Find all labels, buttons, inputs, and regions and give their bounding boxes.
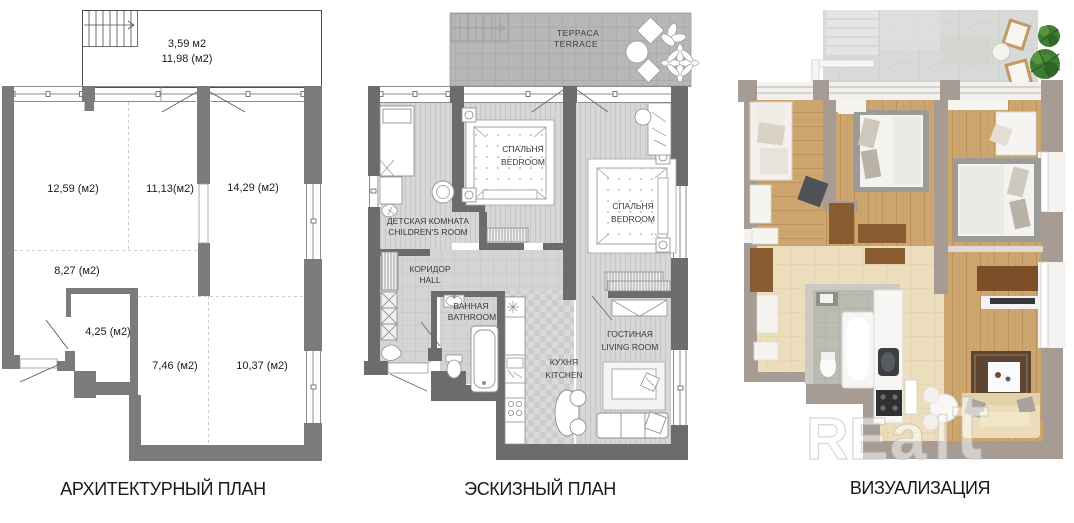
svg-text:4,25 (м2): 4,25 (м2) [85,326,130,338]
svg-text:ДЕТСКАЯ КОМНАТА: ДЕТСКАЯ КОМНАТА [387,216,469,226]
svg-text:ТЕРРАСА: ТЕРРАСА [557,28,599,38]
svg-text:R: R [806,406,849,472]
svg-text:E: E [849,406,888,472]
svg-text:ЭСКИЗНЫЙ ПЛАН: ЭСКИЗНЫЙ ПЛАН [464,478,616,499]
svg-text:КОРИДОР: КОРИДОР [409,264,451,274]
svg-text:10,37 (м2): 10,37 (м2) [236,360,288,372]
svg-text:KITCHEN: KITCHEN [545,370,582,380]
svg-text:12,59 (м2): 12,59 (м2) [47,183,99,195]
svg-text:BATHROOM: BATHROOM [448,312,496,322]
svg-text:a: a [890,400,927,473]
svg-text:8,27 (м2): 8,27 (м2) [54,265,99,277]
svg-text:11,98 (м2): 11,98 (м2) [162,53,213,65]
svg-text:СПАЛЬНЯ: СПАЛЬНЯ [502,144,544,154]
svg-text:LIVING ROOM: LIVING ROOM [602,342,659,352]
svg-text:ВИЗУАЛИЗАЦИЯ: ВИЗУАЛИЗАЦИЯ [850,478,990,498]
svg-text:3,59 м2: 3,59 м2 [168,38,206,50]
svg-text:ГОСТИНАЯ: ГОСТИНАЯ [607,329,653,339]
svg-text:ВАННАЯ: ВАННАЯ [453,301,488,311]
svg-text:HALL: HALL [419,275,441,285]
svg-text:11,13(м2): 11,13(м2) [146,183,194,195]
svg-text:КУХНЯ: КУХНЯ [550,357,578,367]
svg-text:СПАЛЬНЯ: СПАЛЬНЯ [612,201,654,211]
svg-text:CHILDREN'S ROOM: CHILDREN'S ROOM [388,227,468,237]
svg-text:BEDROOM: BEDROOM [611,214,655,224]
svg-text:АРХИТЕКТУРНЫЙ ПЛАН: АРХИТЕКТУРНЫЙ ПЛАН [60,478,266,499]
svg-text:TERRACE: TERRACE [554,39,598,49]
svg-text:7,46 (м2): 7,46 (м2) [152,360,197,372]
svg-text:BEDROOM: BEDROOM [501,157,545,167]
svg-text:14,29 (м2): 14,29 (м2) [227,182,279,194]
svg-text:l: l [934,404,951,472]
